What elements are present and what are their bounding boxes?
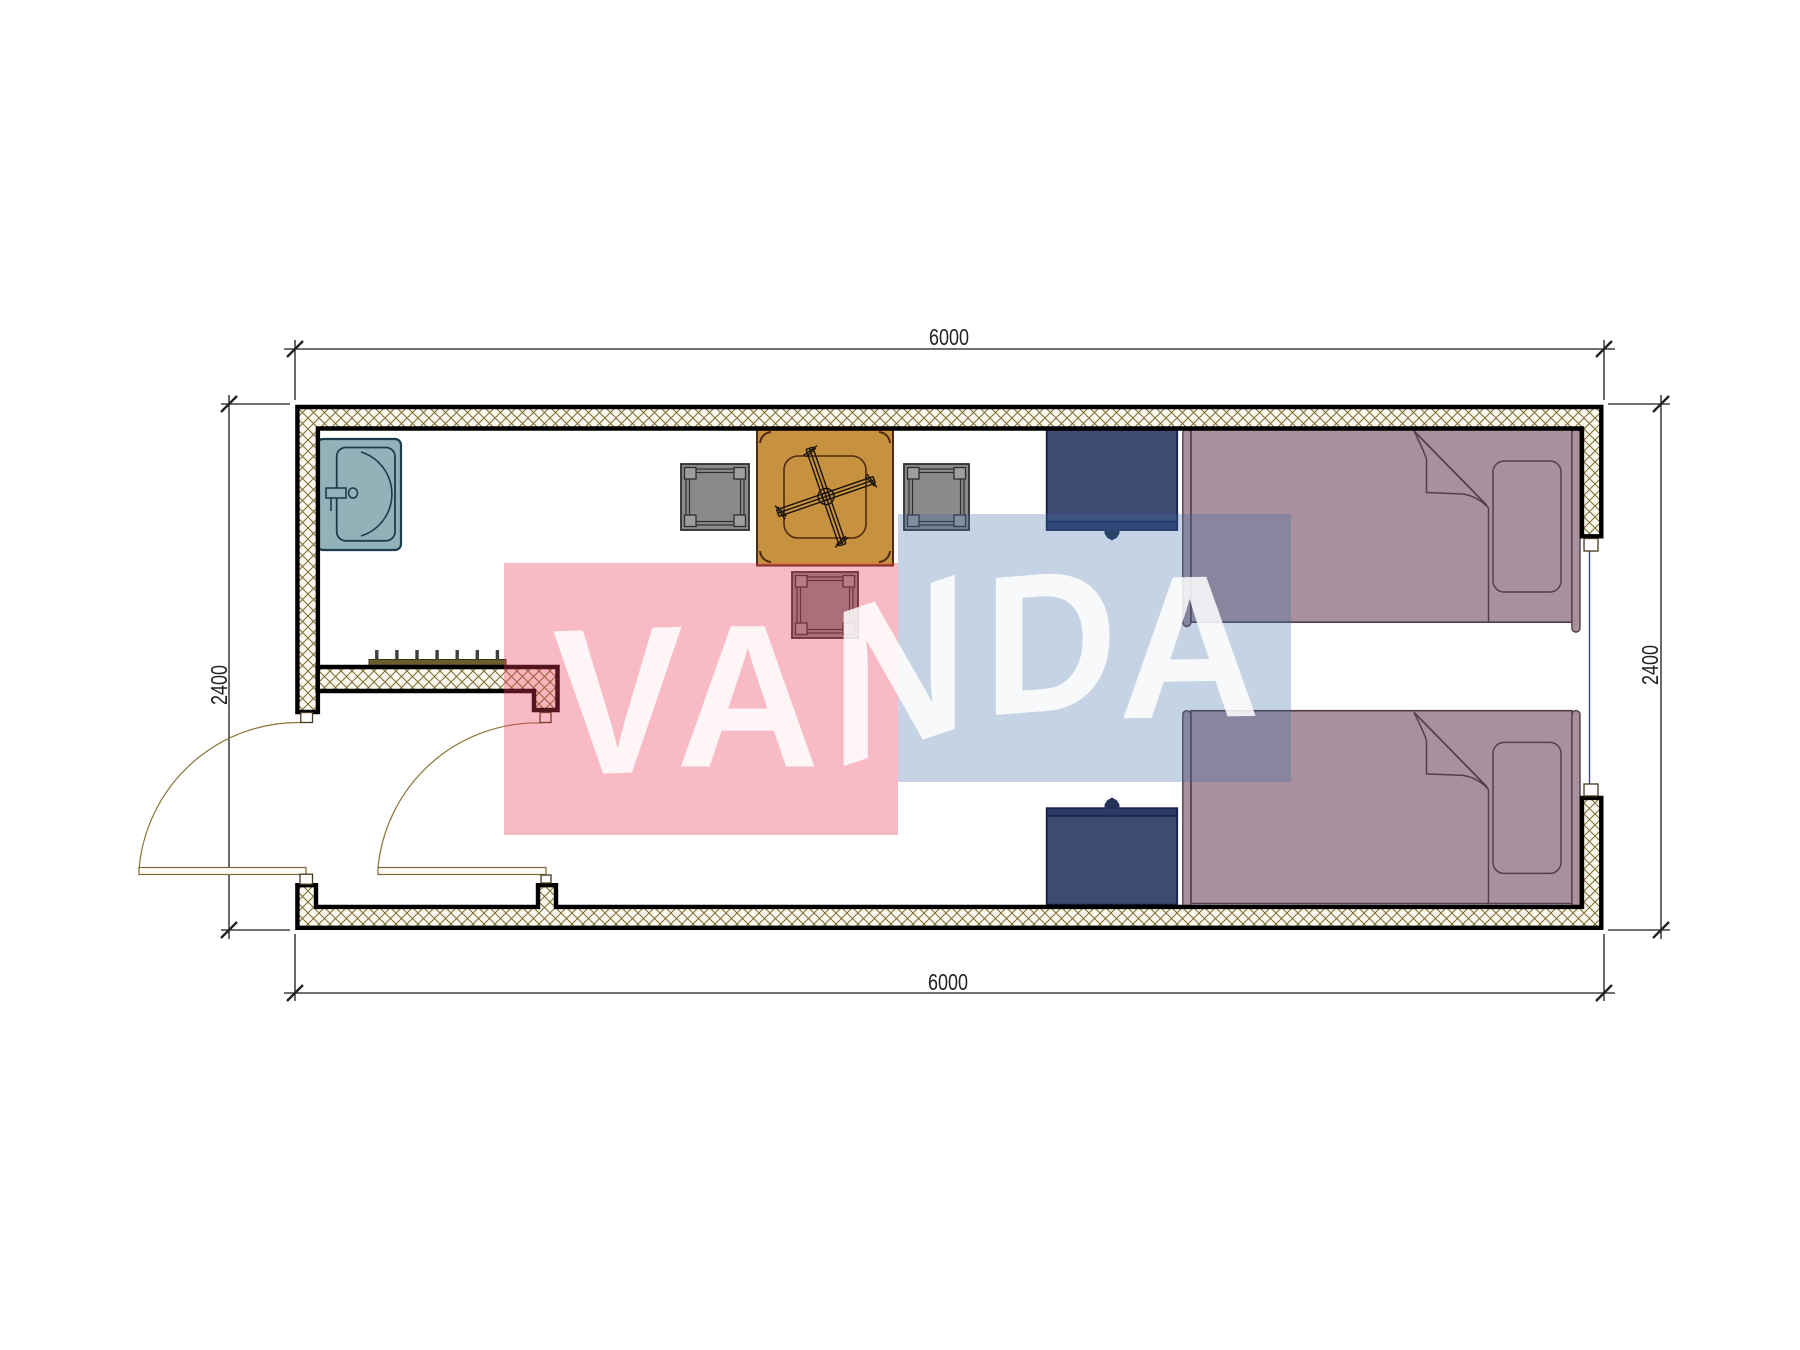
svg-text:6000: 6000: [928, 969, 968, 995]
svg-text:A: A: [676, 582, 820, 810]
svg-text:V: V: [552, 582, 683, 821]
svg-text:6000: 6000: [929, 324, 969, 350]
svg-text:2400: 2400: [1637, 645, 1663, 685]
svg-text:2400: 2400: [206, 665, 232, 705]
svg-text:D: D: [983, 524, 1117, 758]
svg-text:A: A: [1119, 533, 1261, 762]
svg-text:N: N: [831, 522, 968, 818]
